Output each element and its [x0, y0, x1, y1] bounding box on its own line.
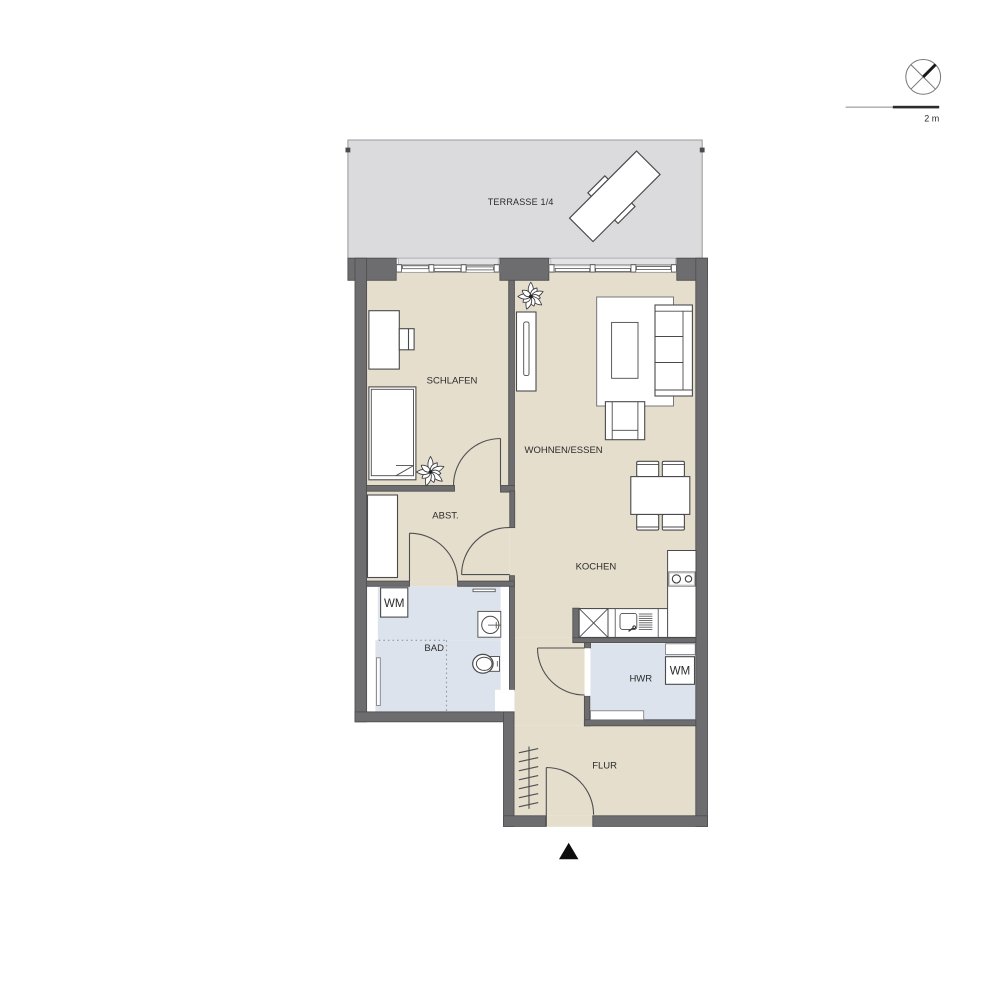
svg-text:WM: WM — [670, 666, 690, 678]
svg-text:KOCHEN: KOCHEN — [576, 561, 617, 572]
svg-text:HWR: HWR — [629, 674, 652, 685]
svg-text:ABST.: ABST. — [432, 511, 458, 522]
svg-text:TERRASSE 1/4: TERRASSE 1/4 — [488, 197, 554, 207]
svg-text:2 m: 2 m — [924, 113, 939, 123]
svg-text:SCHLAFEN: SCHLAFEN — [427, 375, 478, 386]
svg-text:FLUR: FLUR — [592, 761, 617, 772]
svg-text:WM: WM — [384, 598, 404, 610]
svg-text:BAD: BAD — [424, 643, 444, 654]
svg-text:WOHNEN/ESSEN: WOHNEN/ESSEN — [525, 445, 603, 456]
